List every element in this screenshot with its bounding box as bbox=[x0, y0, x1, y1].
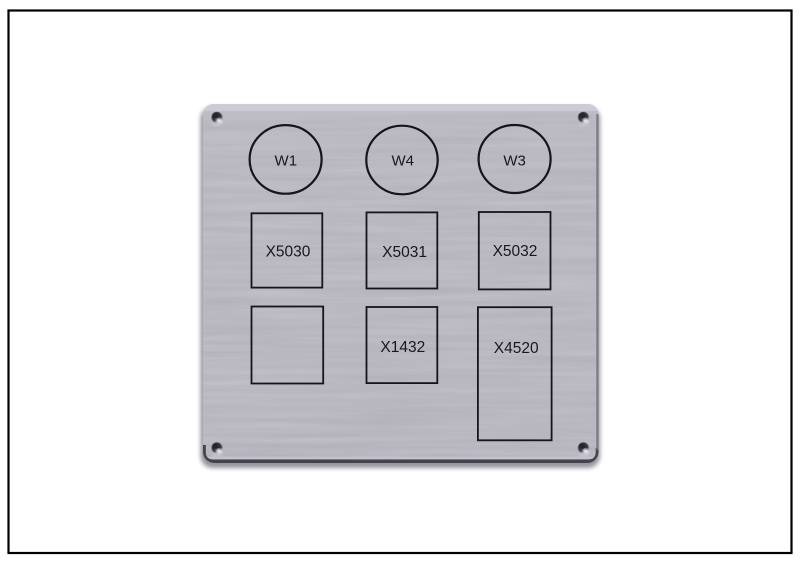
svg-text:X5032: X5032 bbox=[493, 243, 538, 260]
svg-text:X1432: X1432 bbox=[380, 339, 425, 356]
svg-text:X5031: X5031 bbox=[382, 244, 427, 261]
svg-text:W1: W1 bbox=[275, 153, 298, 170]
svg-text:W3: W3 bbox=[503, 153, 526, 170]
svg-text:X4520: X4520 bbox=[494, 340, 539, 357]
svg-text:X5030: X5030 bbox=[266, 243, 311, 260]
svg-text:W4: W4 bbox=[391, 153, 414, 170]
